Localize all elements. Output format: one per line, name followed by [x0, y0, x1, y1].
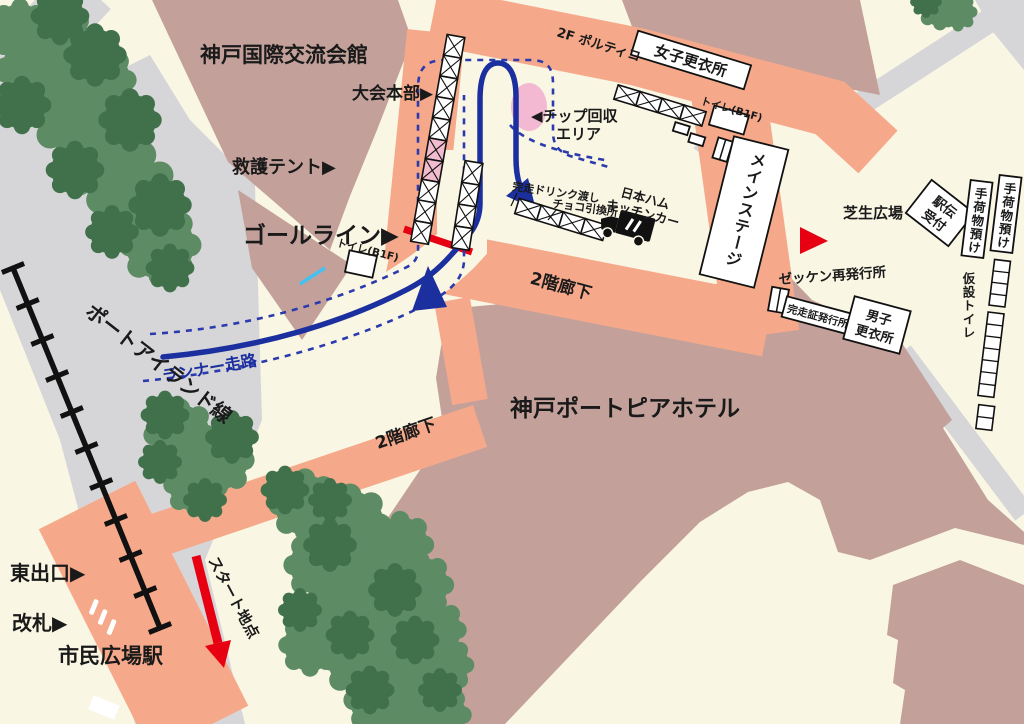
walkway-leg	[452, 300, 470, 402]
goal-line-label: ゴールライン▶	[243, 222, 399, 249]
chip-area-label-1: ◀チップ回収	[531, 107, 619, 125]
first-aid-label: 救護テント▶	[232, 156, 336, 178]
building-bottomright	[887, 560, 1024, 724]
exchange-hall-label: 神戸国際交流会館	[200, 43, 368, 67]
hq-label: 大会本部▶	[352, 83, 434, 104]
station-label: 市民広場駅	[58, 644, 164, 668]
map-canvas: 女子更衣所 トイレ(B1F) メインステージ トイレ(B1F) 完走証	[0, 0, 1024, 724]
gate-label: 改札▶	[12, 611, 68, 635]
temp-toilet-label: 仮設トイレ	[961, 271, 976, 340]
east-exit-label: 東出口▶	[10, 561, 86, 585]
hotel-label: 神戸ポートピアホテル	[510, 395, 740, 422]
chip-area-label-2: エリア	[556, 125, 601, 143]
lawn-label: 芝生広場	[843, 204, 903, 222]
event-venue-map: 女子更衣所 トイレ(B1F) メインステージ トイレ(B1F) 完走証	[0, 0, 1024, 724]
